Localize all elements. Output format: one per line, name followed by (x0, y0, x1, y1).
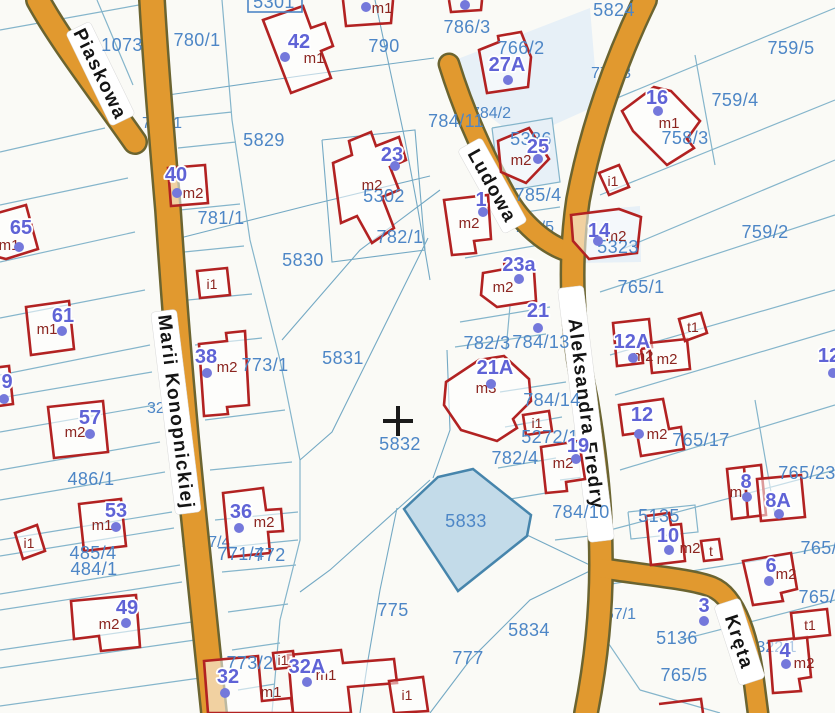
address-number[interactable]: 6 (765, 555, 776, 577)
parcel-number: 5135 (638, 506, 680, 526)
address-dot[interactable] (121, 618, 131, 628)
outbuilding-label: i1 (532, 415, 543, 431)
survey-cross-icon (383, 406, 413, 436)
parcel-number: 775 (377, 600, 408, 620)
parcel-number: 782/4 (491, 448, 538, 468)
address-number[interactable]: 19 (567, 435, 589, 457)
parcel-number: 5824 (593, 0, 635, 20)
address-dot[interactable] (172, 188, 182, 198)
address-dot[interactable] (14, 242, 24, 252)
highlighted-parcel-number: 5833 (445, 511, 487, 531)
outbuilding-label: i1 (402, 687, 413, 703)
address-dot[interactable] (486, 379, 496, 389)
address-dot[interactable] (533, 323, 543, 333)
parcel-number: 782/3 (463, 333, 510, 353)
parcel-number: 5834 (508, 620, 550, 640)
parcel-number: 759/2 (741, 222, 788, 242)
address-dot[interactable] (764, 576, 774, 586)
parcel-number: 765/1 (617, 277, 664, 297)
address-number[interactable]: 38 (195, 346, 217, 368)
address-number[interactable]: 32A (289, 656, 326, 678)
address-number[interactable]: 12A (614, 331, 651, 353)
outbuilding-label: i1 (207, 276, 218, 292)
address-dot[interactable] (202, 368, 212, 378)
address-number[interactable]: 23a (502, 254, 536, 276)
address-number[interactable]: 53 (105, 500, 127, 522)
address-number[interactable]: 10 (657, 525, 679, 547)
parcel-number: 765/23 (778, 463, 835, 483)
parcel-number: 5301 (253, 0, 295, 12)
parcel-number: 5829 (243, 130, 285, 150)
address-dot[interactable] (280, 52, 290, 62)
parcel-number: 780/1 (173, 30, 220, 50)
parcel-number: 786/3 (443, 17, 490, 37)
address-dot[interactable] (533, 154, 543, 164)
address-dot[interactable] (593, 236, 603, 246)
parcel-number: 784/13 (512, 332, 569, 352)
address-number[interactable]: 21 (527, 300, 549, 322)
parcel-number: 765/5 (660, 665, 707, 685)
parcel-number: 484/1 (70, 559, 117, 579)
address-number[interactable]: 12 (818, 345, 835, 367)
address-dot[interactable] (699, 616, 709, 626)
parcel-number: 782/1 (376, 227, 423, 247)
parcel-number: 784/14 (523, 390, 580, 410)
building-label: m2 (647, 426, 668, 443)
building-label: m1 (261, 684, 282, 701)
building-label: m2 (362, 177, 383, 194)
address-dot[interactable] (220, 688, 230, 698)
address-dot[interactable] (828, 368, 835, 378)
address-dot[interactable] (571, 454, 581, 464)
address-number[interactable]: 49 (116, 597, 138, 619)
parcel-number: 781/1 (197, 208, 244, 228)
address-number[interactable]: 9 (1, 371, 12, 393)
building-label: m1 (372, 0, 393, 17)
parcel-number: 777 (452, 648, 483, 668)
address-dot[interactable] (460, 0, 470, 10)
parcel-number: 765/1 (798, 587, 835, 607)
address-number[interactable]: 21A (477, 357, 514, 379)
parcel-number: 759/5 (767, 38, 814, 58)
address-dot[interactable] (628, 353, 638, 363)
address-number[interactable]: 61 (52, 305, 74, 327)
address-number[interactable]: 3 (698, 595, 709, 617)
parcel-number: 785/4 (514, 185, 561, 205)
address-number[interactable]: 4 (779, 640, 791, 662)
building-label: m2 (254, 514, 275, 531)
building-label: m2 (776, 566, 797, 583)
address-dot[interactable] (634, 429, 644, 439)
outbuilding-label: t1 (687, 319, 699, 335)
building-label: m2 (553, 455, 574, 472)
parcel-number: 765/2 (800, 538, 835, 558)
parcel-number: 773/1 (241, 355, 288, 375)
address-dot[interactable] (390, 161, 400, 171)
address-number[interactable]: 12 (631, 404, 653, 426)
address-dot[interactable] (85, 429, 95, 439)
parcel-number: 759/4 (711, 90, 758, 110)
parcel-number: 1073 (101, 35, 143, 55)
address-dot[interactable] (781, 659, 791, 669)
address-dot[interactable] (514, 274, 524, 284)
parcel-number: 486/1 (67, 469, 114, 489)
building-label: m2 (183, 185, 204, 202)
address-dot[interactable] (503, 75, 513, 85)
address-number[interactable]: 8 (740, 471, 751, 493)
parcel-number: 772 (254, 545, 285, 565)
outbuilding-label: t1 (804, 617, 816, 633)
map-canvas[interactable]: 719/1 777/3 784/2 785/5 324/5 1857/4 757… (0, 0, 835, 713)
parcel-number: 5831 (322, 348, 364, 368)
address-number[interactable]: 32 (217, 666, 239, 688)
building-label: m2 (459, 215, 480, 232)
parcel-number: 5830 (282, 250, 324, 270)
address-number[interactable]: 57 (79, 407, 101, 429)
outbuilding-label: i1 (278, 652, 289, 668)
cadastral-map[interactable]: 719/1 777/3 784/2 785/5 324/5 1857/4 757… (0, 0, 835, 713)
address-number[interactable]: 40 (165, 164, 187, 186)
address-dot[interactable] (664, 545, 674, 555)
building-label: m2 (493, 279, 514, 296)
parcel-number: 765/17 (672, 430, 729, 450)
building-label: m2 (794, 655, 815, 672)
address-dot[interactable] (742, 492, 752, 502)
parcel-number: 784/10 (552, 502, 609, 522)
outbuilding-label: t (709, 543, 713, 559)
parcel-number: 784/11 (428, 111, 484, 131)
address-dot[interactable] (653, 106, 663, 116)
building-label: m2 (657, 351, 678, 368)
address-number[interactable]: 65 (10, 217, 32, 239)
address-number[interactable]: 16 (646, 87, 668, 109)
parcel-number: 5136 (656, 628, 698, 648)
address-dot[interactable] (111, 522, 121, 532)
address-dot[interactable] (234, 523, 244, 533)
address-dot[interactable] (774, 509, 784, 519)
address-number[interactable]: 36 (230, 501, 252, 523)
address-number[interactable]: 8A (765, 490, 791, 512)
building-label: m1 (659, 115, 680, 132)
address-number[interactable]: 27A (489, 54, 526, 76)
address-dot[interactable] (478, 207, 488, 217)
building-label: m2 (680, 540, 701, 557)
outbuilding-label: i1 (24, 535, 35, 551)
address-dot[interactable] (361, 2, 371, 12)
address-dot[interactable] (302, 677, 312, 687)
parcel-number: 5832 (379, 434, 421, 454)
building-label: m2 (217, 359, 238, 376)
address-number[interactable]: 42 (288, 31, 310, 53)
address-dot[interactable] (57, 326, 67, 336)
outbuilding-label: i1 (608, 173, 619, 189)
parcel-number: 790 (368, 36, 399, 56)
